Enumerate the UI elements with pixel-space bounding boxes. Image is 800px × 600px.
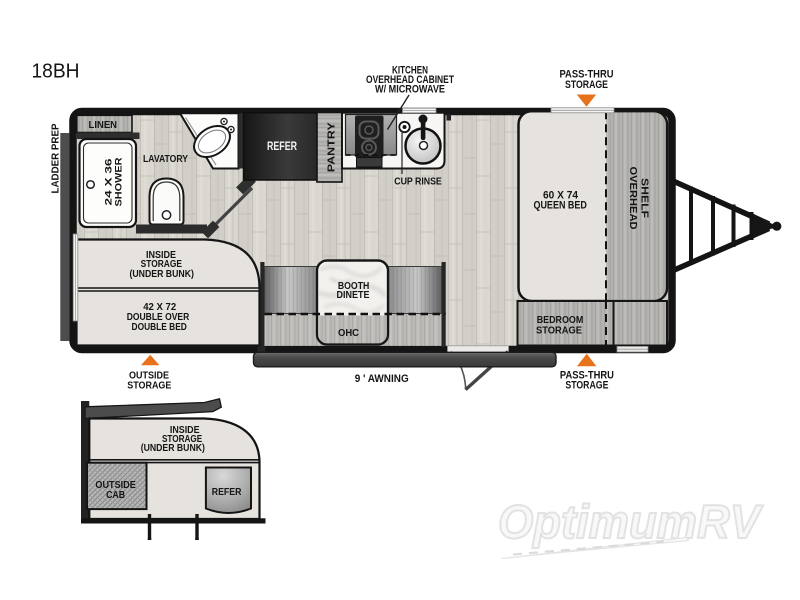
svg-text:STORAGE: STORAGE bbox=[565, 79, 608, 91]
svg-text:STORAGE: STORAGE bbox=[536, 326, 582, 337]
svg-text:SHOWER: SHOWER bbox=[114, 157, 125, 206]
svg-text:REFER: REFER bbox=[212, 487, 242, 498]
svg-text:OVERHEAD: OVERHEAD bbox=[627, 167, 638, 230]
svg-text:OHC: OHC bbox=[338, 327, 359, 339]
svg-text:QUEEN BED: QUEEN BED bbox=[533, 199, 587, 211]
svg-text:W/ MICROWAVE: W/ MICROWAVE bbox=[375, 83, 445, 95]
svg-text:CUP RINSE: CUP RINSE bbox=[394, 175, 442, 187]
svg-text:DOUBLE BED: DOUBLE BED bbox=[132, 322, 187, 333]
svg-text:STORAGE: STORAGE bbox=[127, 380, 171, 392]
svg-text:(UNDER BUNK): (UNDER BUNK) bbox=[141, 443, 205, 454]
svg-text:18BH: 18BH bbox=[32, 61, 80, 83]
svg-text:LAVATORY: LAVATORY bbox=[143, 153, 188, 165]
svg-text:9 ' AWNING: 9 ' AWNING bbox=[355, 373, 409, 385]
svg-text:LINEN: LINEN bbox=[89, 120, 118, 131]
svg-text:LADDER PREP: LADDER PREP bbox=[51, 123, 62, 194]
svg-text:BEDROOM: BEDROOM bbox=[537, 315, 584, 326]
svg-text:PANTRY: PANTRY bbox=[327, 122, 338, 172]
svg-text:(UNDER BUNK): (UNDER BUNK) bbox=[129, 269, 194, 280]
svg-text:REFER: REFER bbox=[267, 141, 298, 153]
svg-text:OptimumRV: OptimumRV bbox=[498, 495, 764, 548]
svg-text:STORAGE: STORAGE bbox=[565, 380, 608, 392]
svg-text:CAB: CAB bbox=[106, 490, 125, 501]
svg-text:SHELF: SHELF bbox=[639, 178, 650, 218]
svg-text:DINETE: DINETE bbox=[337, 289, 370, 301]
